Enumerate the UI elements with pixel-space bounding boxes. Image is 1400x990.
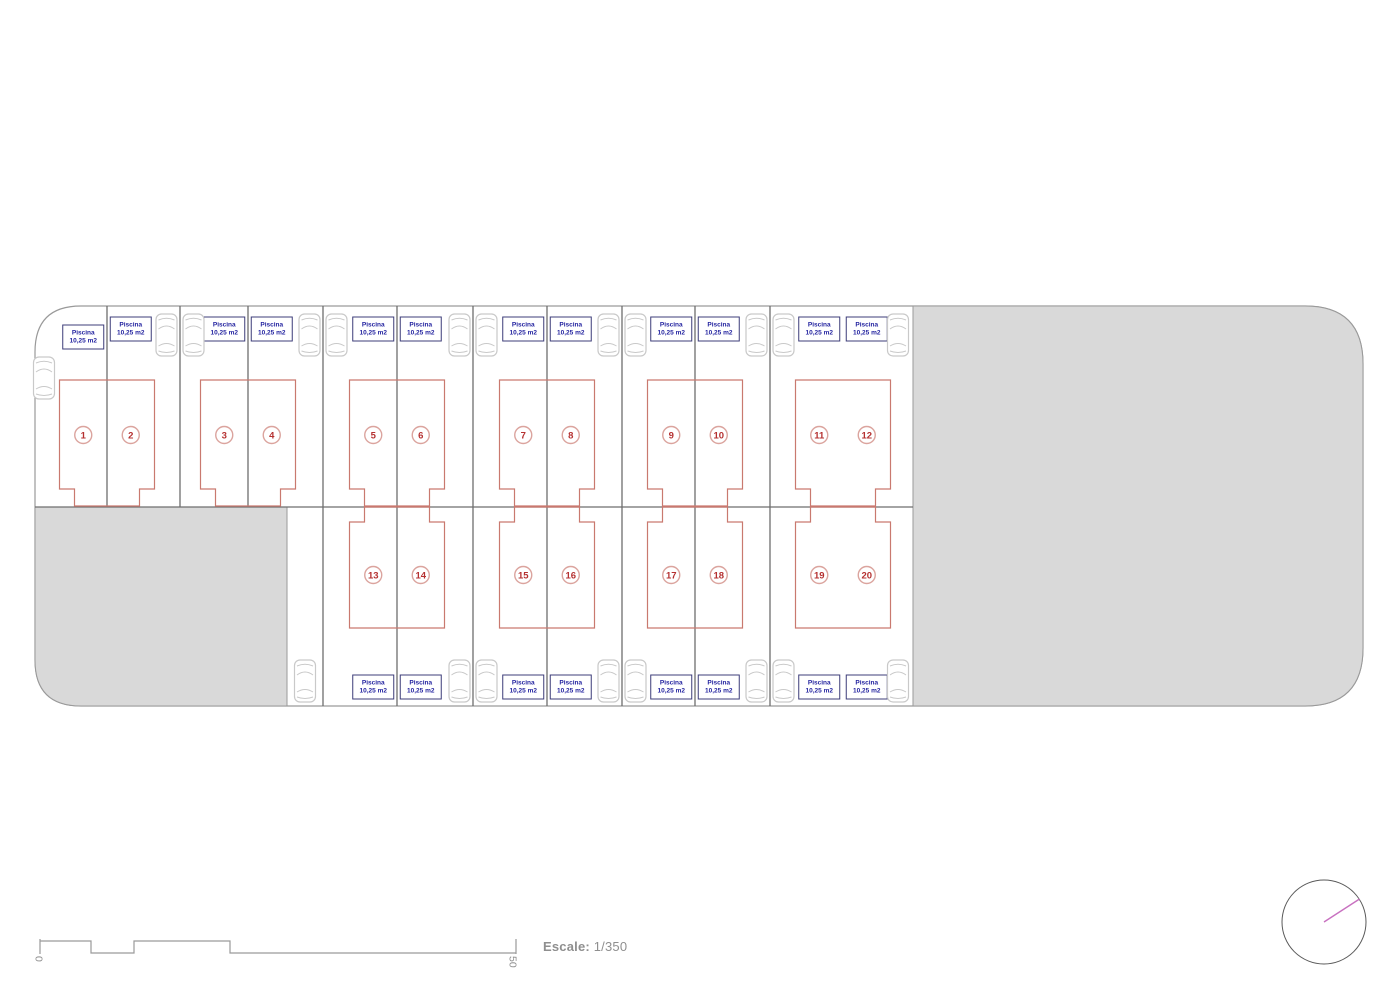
car-icon bbox=[773, 660, 794, 702]
plot-number: 13 bbox=[368, 570, 379, 581]
pool-label-text: Piscina10,25 m2 bbox=[510, 680, 538, 695]
car-icon bbox=[888, 660, 909, 702]
scale-text-value: 1/350 bbox=[594, 939, 628, 954]
car-icon bbox=[773, 314, 794, 356]
pool-label-text: Piscina10,25 m2 bbox=[557, 680, 585, 695]
scale-bar-start-label: 0 bbox=[33, 956, 44, 962]
pool-label-text: Piscina10,25 m2 bbox=[407, 680, 435, 695]
plot-number: 10 bbox=[713, 430, 724, 441]
plot-number: 1 bbox=[81, 430, 87, 441]
plot-number: 15 bbox=[518, 570, 529, 581]
car-icon bbox=[625, 660, 646, 702]
pool-label-text: Piscina10,25 m2 bbox=[705, 322, 733, 337]
car-icon bbox=[34, 357, 55, 399]
plot-number: 20 bbox=[861, 570, 872, 581]
pool-label-text: Piscina10,25 m2 bbox=[360, 322, 388, 337]
pool-label-text: Piscina10,25 m2 bbox=[258, 322, 286, 337]
plot-number: 18 bbox=[713, 570, 724, 581]
pool-label-text: Piscina10,25 m2 bbox=[117, 322, 145, 337]
site-plan-drawing: 12Piscina10,25 m2Piscina10,25 m234Piscin… bbox=[0, 0, 1400, 990]
scale-text-label: Escale: bbox=[543, 939, 590, 954]
pool-label-text: Piscina10,25 m2 bbox=[70, 330, 98, 345]
paved-area-right bbox=[913, 306, 1363, 706]
pool-label-text: Piscina10,25 m2 bbox=[853, 322, 881, 337]
car-icon bbox=[598, 314, 619, 356]
plot-number: 11 bbox=[814, 430, 825, 441]
plot-number: 5 bbox=[371, 430, 377, 441]
car-icon bbox=[746, 314, 767, 356]
pool-label-text: Piscina10,25 m2 bbox=[360, 680, 388, 695]
pool-label-text: Piscina10,25 m2 bbox=[407, 322, 435, 337]
pool-label-text: Piscina10,25 m2 bbox=[211, 322, 239, 337]
plot-number: 7 bbox=[521, 430, 526, 441]
car-icon bbox=[476, 314, 497, 356]
north-compass-icon bbox=[1282, 880, 1366, 964]
car-icon bbox=[299, 314, 320, 356]
car-icon bbox=[746, 660, 767, 702]
car-icon bbox=[598, 660, 619, 702]
pool-label-text: Piscina10,25 m2 bbox=[557, 322, 585, 337]
scale-bar-end-label: 50 bbox=[507, 956, 518, 968]
car-icon bbox=[476, 660, 497, 702]
plot-number: 16 bbox=[565, 570, 576, 581]
pool-label-text: Piscina10,25 m2 bbox=[658, 680, 686, 695]
scale-bar bbox=[40, 939, 516, 954]
pool-label-text: Piscina10,25 m2 bbox=[658, 322, 686, 337]
pool-label-text: Piscina10,25 m2 bbox=[806, 322, 834, 337]
plot-number: 19 bbox=[814, 570, 825, 581]
pool-label-text: Piscina10,25 m2 bbox=[705, 680, 733, 695]
car-icon bbox=[888, 314, 909, 356]
car-icon bbox=[326, 314, 347, 356]
plot-number: 6 bbox=[418, 430, 423, 441]
car-icon bbox=[183, 314, 204, 356]
pool-label-text: Piscina10,25 m2 bbox=[510, 322, 538, 337]
plot-number: 9 bbox=[669, 430, 674, 441]
car-icon bbox=[625, 314, 646, 356]
car-icon bbox=[449, 314, 470, 356]
scale-text: Escale: 1/350 bbox=[543, 939, 627, 954]
plot-number: 14 bbox=[415, 570, 426, 581]
car-icon bbox=[449, 660, 470, 702]
plot-number: 12 bbox=[861, 430, 872, 441]
paved-area-bottom-left bbox=[35, 507, 287, 706]
plot-number: 3 bbox=[222, 430, 227, 441]
pool-label-text: Piscina10,25 m2 bbox=[806, 680, 834, 695]
car-icon bbox=[295, 660, 316, 702]
plot-number: 8 bbox=[568, 430, 573, 441]
car-icon bbox=[156, 314, 177, 356]
plot-number: 2 bbox=[128, 430, 133, 441]
pool-label-text: Piscina10,25 m2 bbox=[853, 680, 881, 695]
plot-number: 4 bbox=[269, 430, 275, 441]
plot-number: 17 bbox=[666, 570, 677, 581]
